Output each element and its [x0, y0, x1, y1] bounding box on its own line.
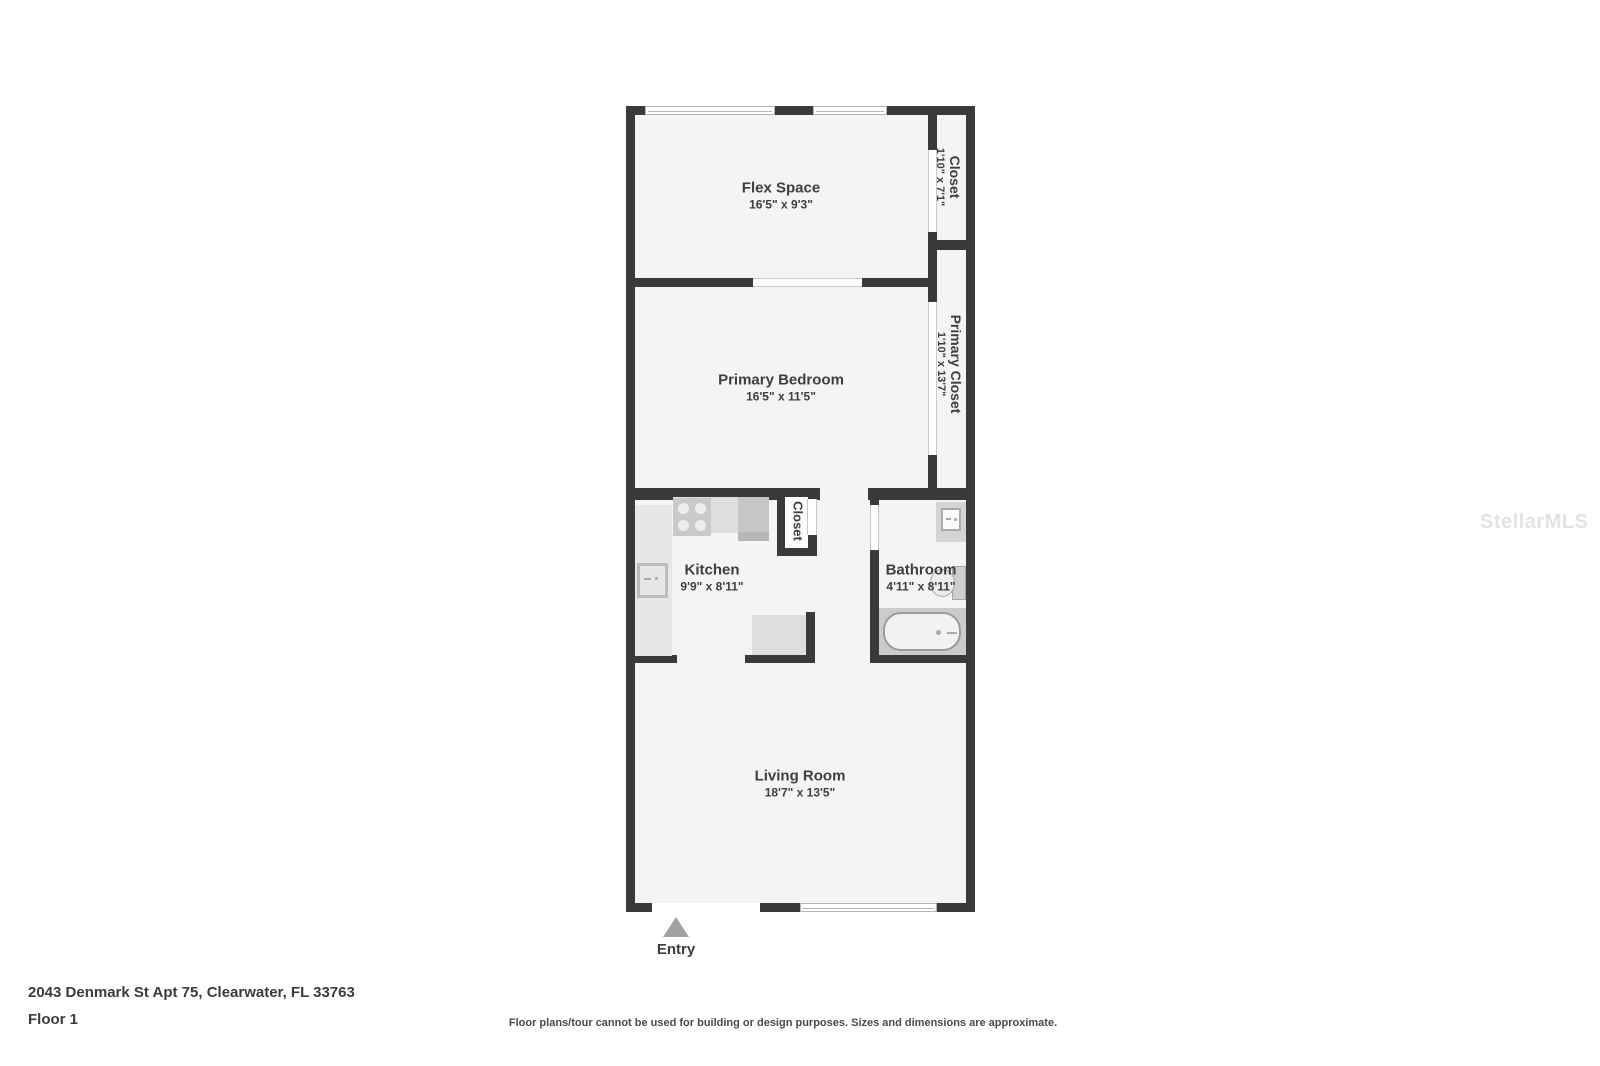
- room-name: Primary Bedroom: [718, 371, 844, 388]
- room-label-primary-closet: Primary Closet 1'10" x 13'7": [934, 315, 964, 414]
- entry-door-opening: [652, 903, 760, 912]
- bathroom-sink-icon: [936, 502, 966, 542]
- room-dims: 16'5" x 11'5": [718, 391, 844, 405]
- wall-kitchen-bottom-right: [745, 655, 815, 663]
- disclaimer-text: Floor plans/tour cannot be used for buil…: [509, 1017, 1057, 1029]
- wall-flex-bedroom-left: [626, 278, 753, 287]
- room-label-kitchen-closet: Closet: [790, 501, 805, 541]
- bathtub-icon: [883, 612, 961, 651]
- window-flex-right: [813, 106, 887, 115]
- stove-icon: [673, 498, 711, 536]
- kitchen-closet-door: [807, 499, 817, 535]
- wall-flex-bedroom-right: [862, 278, 937, 287]
- stellar-mls-watermark: StellarMLS: [1480, 511, 1588, 534]
- address-text: 2043 Denmark St Apt 75, Clearwater, FL 3…: [28, 984, 355, 1001]
- room-dims: 9'9" x 8'11": [680, 581, 743, 595]
- entry-arrow-icon: [663, 917, 689, 937]
- room-dims: 18'7" x 13'5": [755, 787, 846, 801]
- room-label-kitchen: Kitchen 9'9" x 8'11": [680, 561, 743, 594]
- window-flex-left: [645, 106, 775, 115]
- wall-kitchen-stub: [806, 612, 815, 663]
- room-label-closet: Closet 1'10" x 7'1": [933, 148, 963, 206]
- entry-label: Entry: [657, 941, 695, 958]
- room-dims: 4'11" x 8'11": [886, 581, 957, 595]
- room-label-flex-space: Flex Space 16'5" x 9'3": [742, 179, 820, 212]
- room-dims: 1'10" x 7'1": [933, 148, 946, 206]
- room-name: Kitchen: [680, 561, 743, 578]
- refrigerator-icon: [738, 497, 769, 541]
- room-name: Closet: [790, 501, 805, 541]
- room-dims: 1'10" x 13'7": [934, 315, 947, 414]
- flex-bedroom-opening: [753, 278, 862, 287]
- room-name: Living Room: [755, 767, 846, 784]
- room-label-primary-bedroom: Primary Bedroom 16'5" x 11'5": [718, 371, 844, 404]
- room-name: Bathroom: [886, 561, 957, 578]
- room-label-living-room: Living Room 18'7" x 13'5": [755, 767, 846, 800]
- wall-bedroom-bottom-right: [868, 488, 975, 500]
- room-name: Closet: [947, 148, 963, 206]
- room-dims: 16'5" x 9'3": [742, 199, 820, 213]
- bathroom-door: [870, 505, 879, 550]
- room-label-bathroom: Bathroom 4'11" x 8'11": [886, 561, 957, 594]
- wall-outer-left: [626, 106, 635, 912]
- room-name: Flex Space: [742, 179, 820, 196]
- wall-closet-separator: [928, 240, 975, 250]
- wall-kitchen-bottom-left: [626, 655, 677, 663]
- floor-plan-page: Flex Space 16'5" x 9'3" Primary Bedroom …: [0, 0, 1600, 1066]
- kitchen-sink-icon: [637, 563, 668, 598]
- kitchen-pantry-block: [752, 615, 806, 655]
- wall-bathroom-bottom: [870, 655, 975, 663]
- wall-outer-right: [966, 106, 975, 912]
- window-living-room: [800, 903, 937, 912]
- floor-label: Floor 1: [28, 1011, 78, 1028]
- room-name: Primary Closet: [948, 315, 964, 414]
